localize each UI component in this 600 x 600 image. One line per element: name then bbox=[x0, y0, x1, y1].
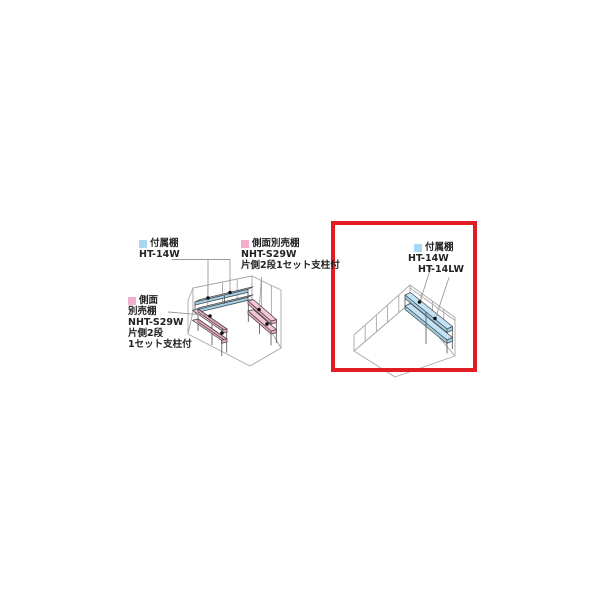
label-text: 側面別売棚 bbox=[252, 238, 300, 249]
left-side-shelf-left-label: 側面 別売棚 NHT-S29W 片側2段 1セット支柱付 bbox=[128, 295, 192, 350]
blue-shelf-swatch-icon bbox=[414, 244, 422, 252]
label-text: NHT-S29W bbox=[241, 249, 340, 260]
left-attached-shelf-label: 付属棚 HT-14W bbox=[139, 238, 180, 260]
right-attached-shelf-label: 付属棚 HT-14W HT-14LW bbox=[408, 242, 464, 275]
label-text: 1セット支柱付 bbox=[128, 339, 192, 350]
product-diagram-page: 付属棚 HT-14W 側面別売棚 NHT-S29W 片側2段1セット支柱付 側面… bbox=[0, 0, 600, 600]
left-side-shelf-right-label: 側面別売棚 NHT-S29W 片側2段1セット支柱付 bbox=[241, 238, 340, 271]
label-text: 側面 bbox=[139, 295, 158, 306]
label-text: 付属棚 bbox=[150, 238, 179, 249]
label-text: 片側2段 bbox=[128, 328, 192, 339]
label-text: HT-14LW bbox=[408, 264, 464, 275]
pink-shelf-swatch-icon bbox=[241, 240, 249, 248]
blue-shelf-swatch-icon bbox=[139, 240, 147, 248]
shed-line-art bbox=[0, 0, 600, 600]
label-text: 片側2段1セット支柱付 bbox=[241, 260, 340, 271]
label-text: 付属棚 bbox=[425, 242, 454, 253]
pink-shelf-swatch-icon bbox=[128, 297, 136, 305]
label-text: 別売棚 bbox=[128, 306, 192, 317]
label-text: HT-14W bbox=[408, 253, 464, 264]
label-text: HT-14W bbox=[139, 249, 180, 260]
label-text: NHT-S29W bbox=[128, 317, 192, 328]
